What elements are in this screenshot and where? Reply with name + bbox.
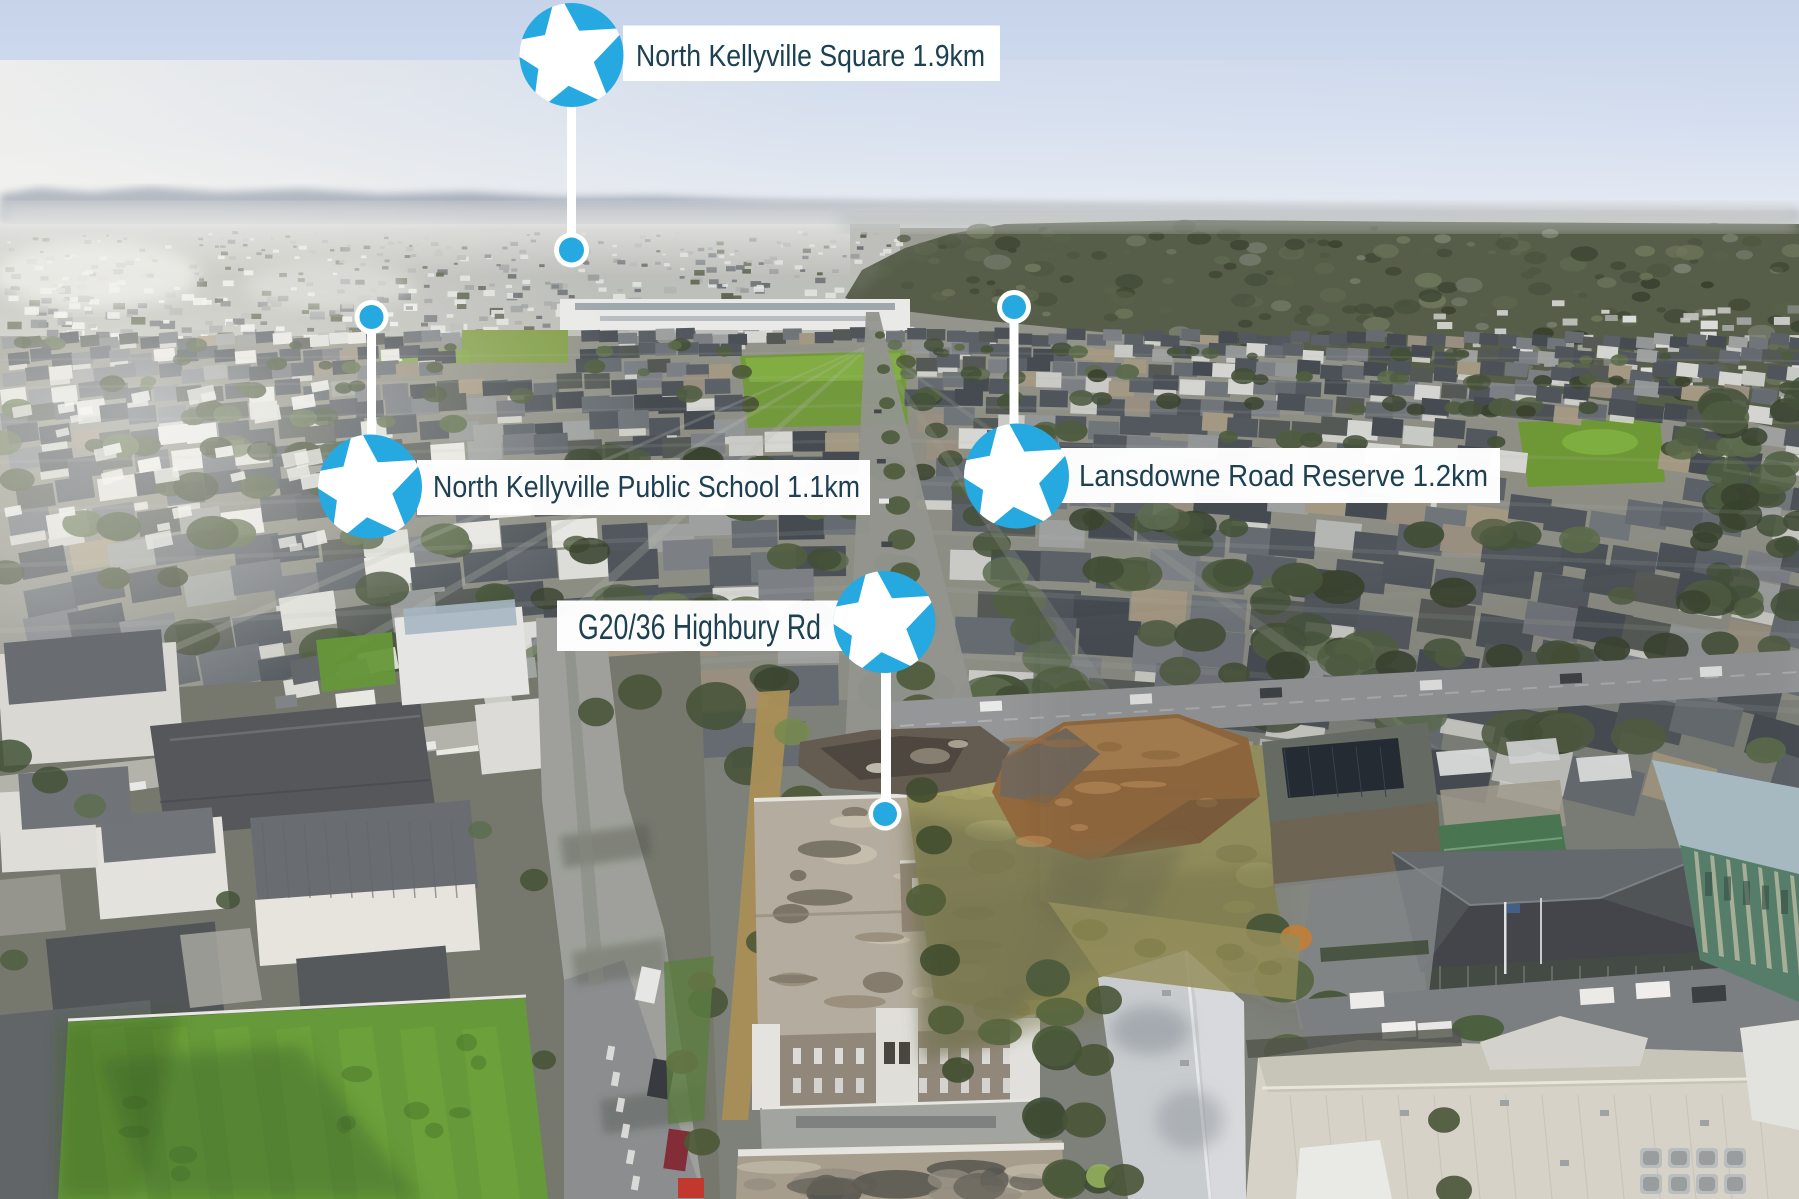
svg-text:North Kellyville Public School: North Kellyville Public School 1.1km: [433, 470, 860, 504]
svg-text:Lansdowne Road Reserve 1.2km: Lansdowne Road Reserve 1.2km: [1079, 459, 1488, 493]
svg-text:G20/36 Highbury Rd: G20/36 Highbury Rd: [578, 608, 821, 647]
svg-text:North Kellyville Square 1.9km: North Kellyville Square 1.9km: [636, 39, 985, 73]
